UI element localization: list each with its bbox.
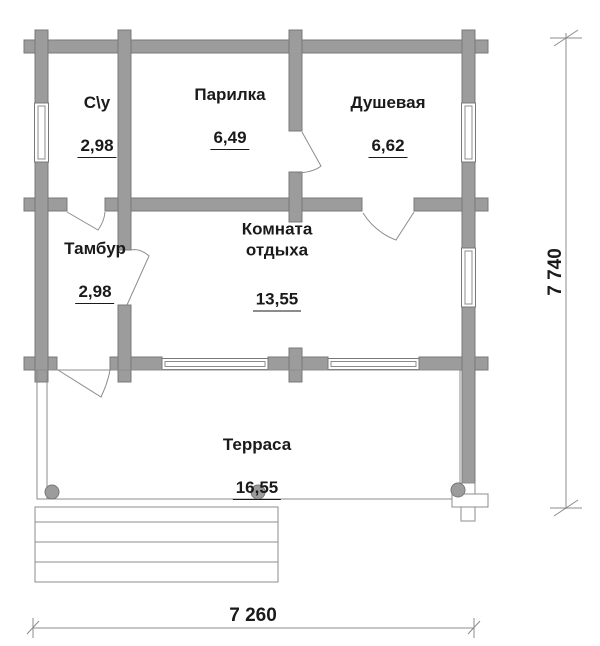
room-name: Комната отдыха — [217, 219, 337, 261]
wall-bottom-cross-stub — [289, 348, 302, 382]
window-komnata-bottom-1 — [162, 359, 268, 370]
door-dushevaya — [363, 212, 414, 240]
room-area-value: 6,49 — [210, 127, 249, 150]
room-label-tambur: Тамбур 2,98 — [64, 217, 126, 325]
room-name: Парилка — [194, 84, 265, 105]
wall-right-exterior-terrace — [462, 307, 475, 497]
window-komnata-bottom-2 — [328, 359, 419, 370]
terrace-post-right — [451, 483, 465, 497]
room-area: 6,62 — [351, 135, 426, 158]
wall-right-exterior-upper — [462, 30, 475, 103]
door-parilka — [298, 132, 321, 173]
room-area-value: 16,55 — [233, 477, 282, 500]
room-label-su: С\у 2,98 — [77, 71, 116, 179]
terrace-post-left — [45, 485, 59, 499]
room-area: 16,55 — [223, 477, 291, 500]
room-label-terrasa: Терраса 16,55 — [223, 413, 291, 521]
room-area: 2,98 — [64, 281, 126, 304]
wall-middle-right-segment — [414, 198, 488, 211]
wall-left-exterior-upper — [35, 30, 48, 103]
room-area-value: 2,98 — [77, 135, 116, 158]
door-tambur-komnata — [127, 250, 149, 305]
room-area-value: 13,55 — [253, 289, 302, 312]
dimension-depth-label: 7 740 — [545, 248, 567, 296]
room-label-dushevaya: Душевая 6,62 — [351, 71, 426, 179]
room-label-komnata-otdyha: Комната отдыха 13,55 — [217, 198, 337, 333]
wall-parilka-dushevaya-upper — [289, 30, 302, 131]
room-area: 6,49 — [194, 127, 265, 150]
door-entrance — [58, 370, 110, 397]
dimension-width-label: 7 260 — [229, 605, 277, 627]
floor-plan: С\у 2,98 Парилка 6,49 Душевая 6,62 Тамбу… — [0, 0, 600, 646]
window-dushevaya-right — [462, 103, 476, 162]
room-name: Тамбур — [64, 238, 126, 259]
room-area: 2,98 — [77, 135, 116, 158]
room-name: Терраса — [223, 434, 291, 455]
room-label-parilka: Парилка 6,49 — [194, 63, 265, 171]
wall-bottom-right-segment — [419, 357, 488, 370]
room-name: С\у — [77, 92, 116, 113]
room-area-value: 6,62 — [368, 135, 407, 158]
room-name: Душевая — [351, 92, 426, 113]
room-area: 13,55 — [217, 289, 337, 312]
room-area-value: 2,98 — [75, 281, 114, 304]
window-komnata-right — [462, 248, 476, 307]
wall-top-exterior — [24, 40, 488, 53]
wall-right-exterior-middle — [462, 162, 475, 248]
window-su-left — [35, 103, 49, 162]
wall-left-exterior-lower — [35, 162, 48, 382]
